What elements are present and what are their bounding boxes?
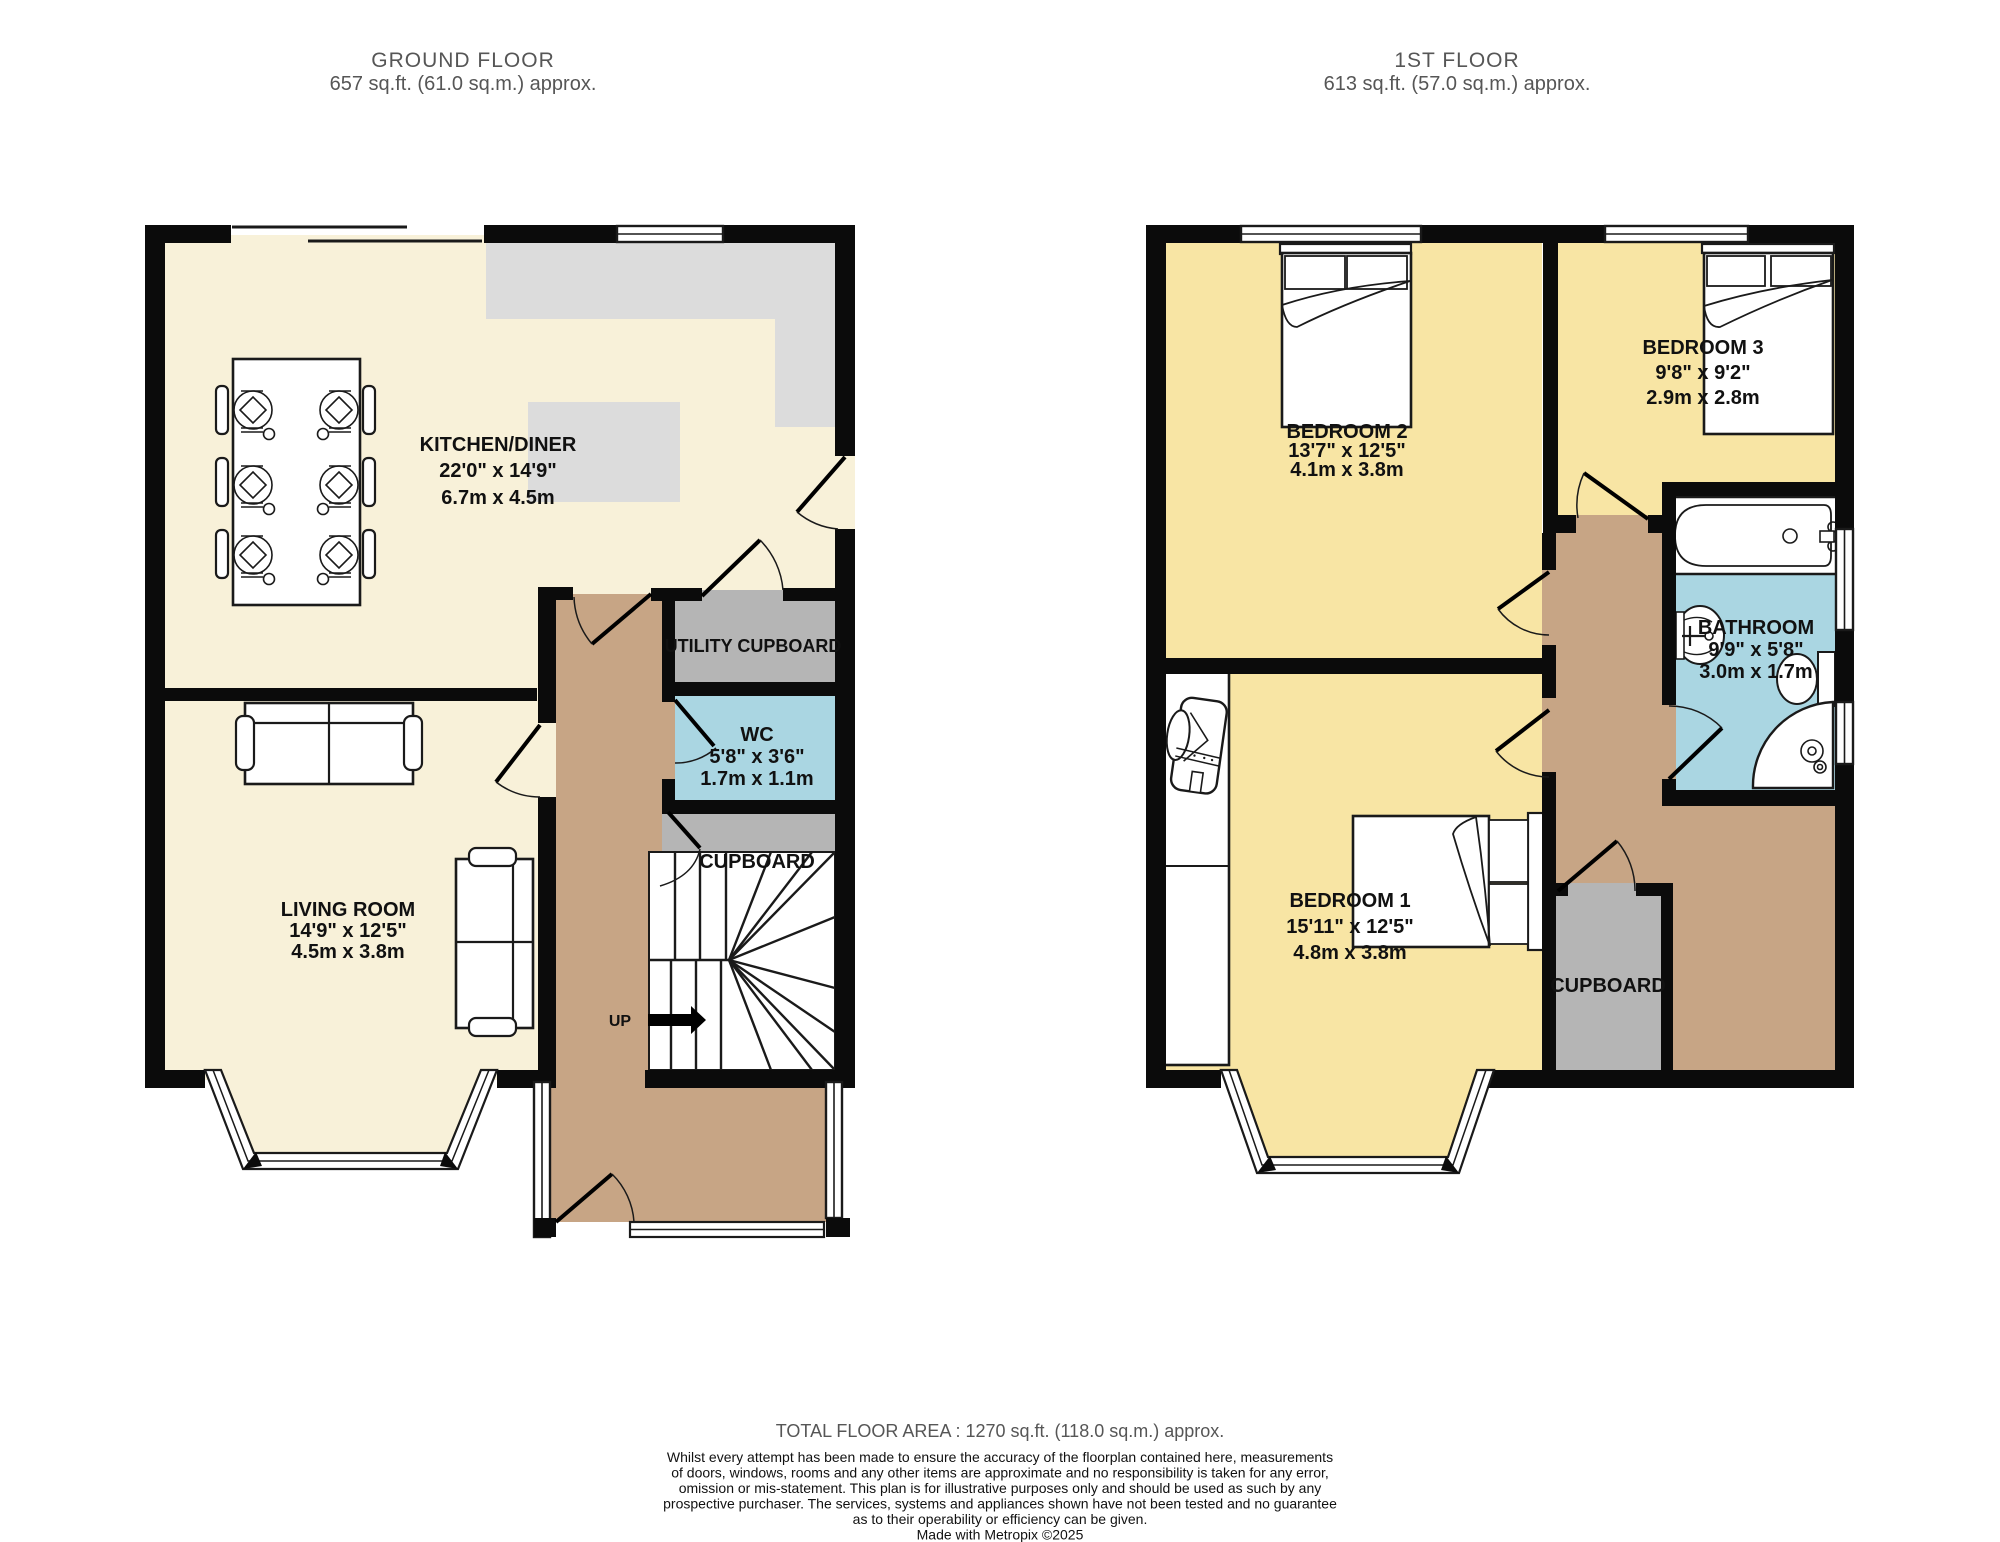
svg-text:14'9" x 12'5": 14'9" x 12'5" [289, 920, 406, 942]
svg-text:UTILITY CUPBOARD: UTILITY CUPBOARD [665, 636, 842, 656]
svg-text:3.0m x 1.7m: 3.0m x 1.7m [1699, 661, 1812, 683]
svg-text:4.1m x 3.8m: 4.1m x 3.8m [1290, 459, 1403, 481]
svg-text:omission or mis-statement. Thi: omission or mis-statement. This plan is … [679, 1480, 1322, 1496]
svg-text:Made with Metropix ©2025: Made with Metropix ©2025 [917, 1527, 1084, 1542]
svg-text:KITCHEN/DINER: KITCHEN/DINER [420, 434, 577, 456]
svg-text:BEDROOM 1: BEDROOM 1 [1289, 890, 1410, 912]
svg-text:6.7m x 4.5m: 6.7m x 4.5m [441, 487, 554, 509]
svg-text:1.7m x 1.1m: 1.7m x 1.1m [700, 768, 813, 790]
svg-text:5'8" x 3'6": 5'8" x 3'6" [709, 746, 804, 768]
svg-text:22'0" x 14'9": 22'0" x 14'9" [439, 460, 556, 482]
svg-text:CUPBOARD: CUPBOARD [1550, 975, 1666, 997]
svg-text:BATHROOM: BATHROOM [1698, 617, 1814, 639]
svg-text:BEDROOM 3: BEDROOM 3 [1642, 337, 1763, 359]
svg-text:WC: WC [740, 724, 773, 746]
svg-text:CUPBOARD: CUPBOARD [699, 851, 815, 873]
svg-text:Whilst every attempt has been: Whilst every attempt has been made to en… [667, 1449, 1333, 1465]
svg-text:UP: UP [609, 1013, 632, 1030]
svg-text:15'11" x 12'5": 15'11" x 12'5" [1286, 916, 1413, 938]
svg-text:613 sq.ft. (57.0 sq.m.) approx: 613 sq.ft. (57.0 sq.m.) approx. [1324, 73, 1591, 95]
svg-text:9'9" x 5'8": 9'9" x 5'8" [1708, 639, 1803, 661]
svg-text:LIVING ROOM: LIVING ROOM [281, 899, 415, 921]
svg-text:4.5m x 3.8m: 4.5m x 3.8m [291, 941, 404, 963]
svg-text:9'8" x 9'2": 9'8" x 9'2" [1655, 362, 1750, 384]
svg-text:TOTAL FLOOR AREA : 1270 sq.ft.: TOTAL FLOOR AREA : 1270 sq.ft. (118.0 sq… [776, 1421, 1225, 1441]
svg-text:prospective purchaser. The ser: prospective purchaser. The services, sys… [663, 1496, 1337, 1512]
svg-text:4.8m x 3.8m: 4.8m x 3.8m [1293, 942, 1406, 964]
svg-text:GROUND FLOOR: GROUND FLOOR [371, 49, 555, 72]
svg-text:2.9m x 2.8m: 2.9m x 2.8m [1646, 387, 1759, 409]
svg-text:657 sq.ft. (61.0 sq.m.) approx: 657 sq.ft. (61.0 sq.m.) approx. [330, 73, 597, 95]
svg-text:1ST FLOOR: 1ST FLOOR [1394, 49, 1519, 72]
svg-text:as to their operability or eff: as to their operability or efficiency ca… [853, 1511, 1148, 1527]
svg-text:of doors, windows, rooms and a: of doors, windows, rooms and any other i… [671, 1465, 1329, 1481]
